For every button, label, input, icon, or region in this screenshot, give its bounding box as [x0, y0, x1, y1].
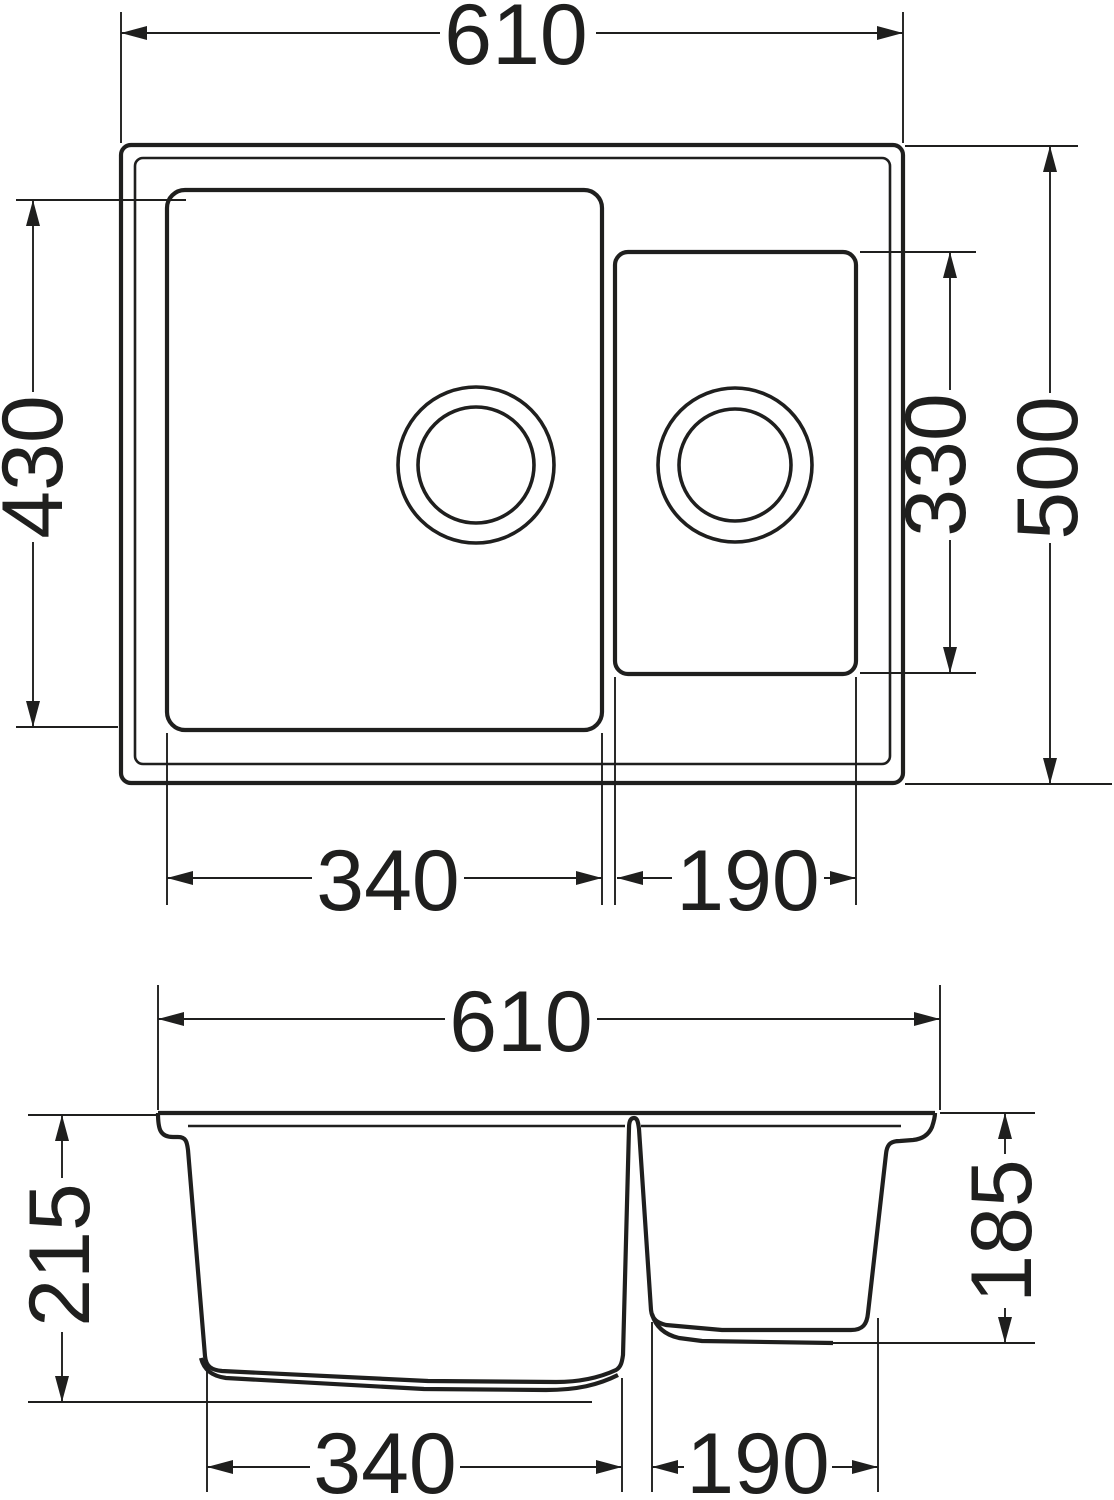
dim-label-front-half-bowl-width: 190 [686, 1416, 830, 1500]
main-bowl [167, 190, 602, 730]
dim-label-half-bowl-length: 330 [888, 393, 984, 537]
half-bowl [615, 252, 856, 674]
dim-label-main-bowl-depth: 215 [12, 1183, 108, 1327]
sink-dimension-drawing: 610 430 330 [0, 0, 1114, 1500]
dimension-top-half-bowl-width: 190 [615, 677, 856, 929]
dimension-top-main-bowl-width: 340 [167, 733, 602, 929]
dim-label-main-bowl-length: 430 [0, 395, 81, 539]
dim-label-top-overall-width: 610 [444, 0, 588, 83]
top-view: 610 430 330 [0, 0, 1112, 929]
dimension-top-overall-width: 610 [121, 0, 903, 143]
dim-label-half-bowl-depth: 185 [954, 1159, 1050, 1303]
dimension-main-bowl-length: 430 [0, 200, 186, 727]
dim-label-top-main-bowl-width: 340 [316, 833, 460, 929]
half-bowl-drain-inner [679, 409, 791, 521]
dim-label-top-half-bowl-width: 190 [676, 833, 820, 929]
dim-label-overall-depth: 500 [1000, 396, 1096, 540]
sink-outer-edge [121, 145, 903, 783]
dimension-half-bowl-length: 330 [860, 252, 984, 673]
dimension-front-overall-width: 610 [158, 974, 940, 1110]
main-bowl-drain-inner [418, 407, 534, 523]
dim-label-front-main-bowl-width: 340 [313, 1416, 457, 1500]
main-bowl-drain-outer [398, 387, 554, 543]
front-section-view: 610 215 185 [12, 974, 1050, 1500]
dimension-main-bowl-depth: 215 [12, 1115, 592, 1402]
dimension-half-bowl-depth: 185 [833, 1113, 1050, 1343]
dim-label-front-overall-width: 610 [449, 974, 593, 1070]
dimension-front-half-bowl-width: 190 [652, 1318, 878, 1500]
half-bowl-drain-outer [658, 388, 812, 542]
